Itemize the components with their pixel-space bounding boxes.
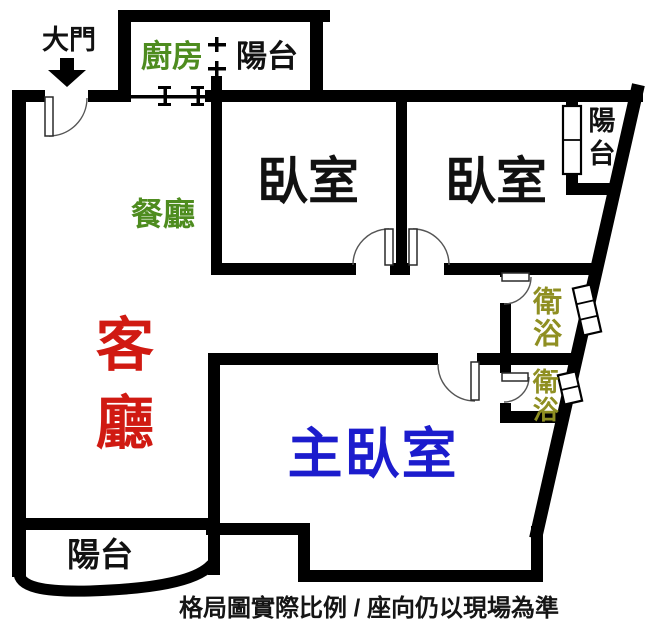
room-label-balcony-bottom: 陽台 — [60, 538, 140, 573]
room-label-bedroom2: 臥室 — [426, 155, 566, 209]
entrance-label: 大門 — [38, 26, 100, 54]
bedroom2-door — [409, 229, 449, 265]
bathroom1-door — [502, 273, 531, 304]
room-label-bedroom1: 臥室 — [238, 155, 378, 209]
room-label-living: 客廳 — [88, 314, 149, 470]
room-label-balcony-top: 陽台 — [228, 41, 306, 74]
bathroom2-door — [502, 373, 529, 402]
room-label-kitchen: 廚房 — [133, 41, 211, 74]
room-label-bathroom1: 衛浴 — [529, 286, 559, 350]
room-label-bathroom2: 衛浴 — [530, 368, 557, 424]
floor-plan: 大門 廚房 陽台 臥室 臥室 陽台 餐廳 客廳 衛浴 衛浴 主臥室 陽台 格局圖… — [0, 0, 653, 636]
master-bedroom-door — [438, 362, 479, 401]
room-label-balcony-right: 陽台 — [585, 106, 613, 172]
room-label-dining: 餐廳 — [123, 198, 203, 232]
disclaimer-caption: 格局圖實際比例 / 座向仍以現場為準 — [179, 596, 559, 621]
room-label-master-bedroom: 主臥室 — [273, 426, 473, 484]
bedroom1-door — [353, 229, 393, 265]
entrance-arrow-icon — [48, 58, 86, 87]
entrance-door — [45, 97, 87, 136]
